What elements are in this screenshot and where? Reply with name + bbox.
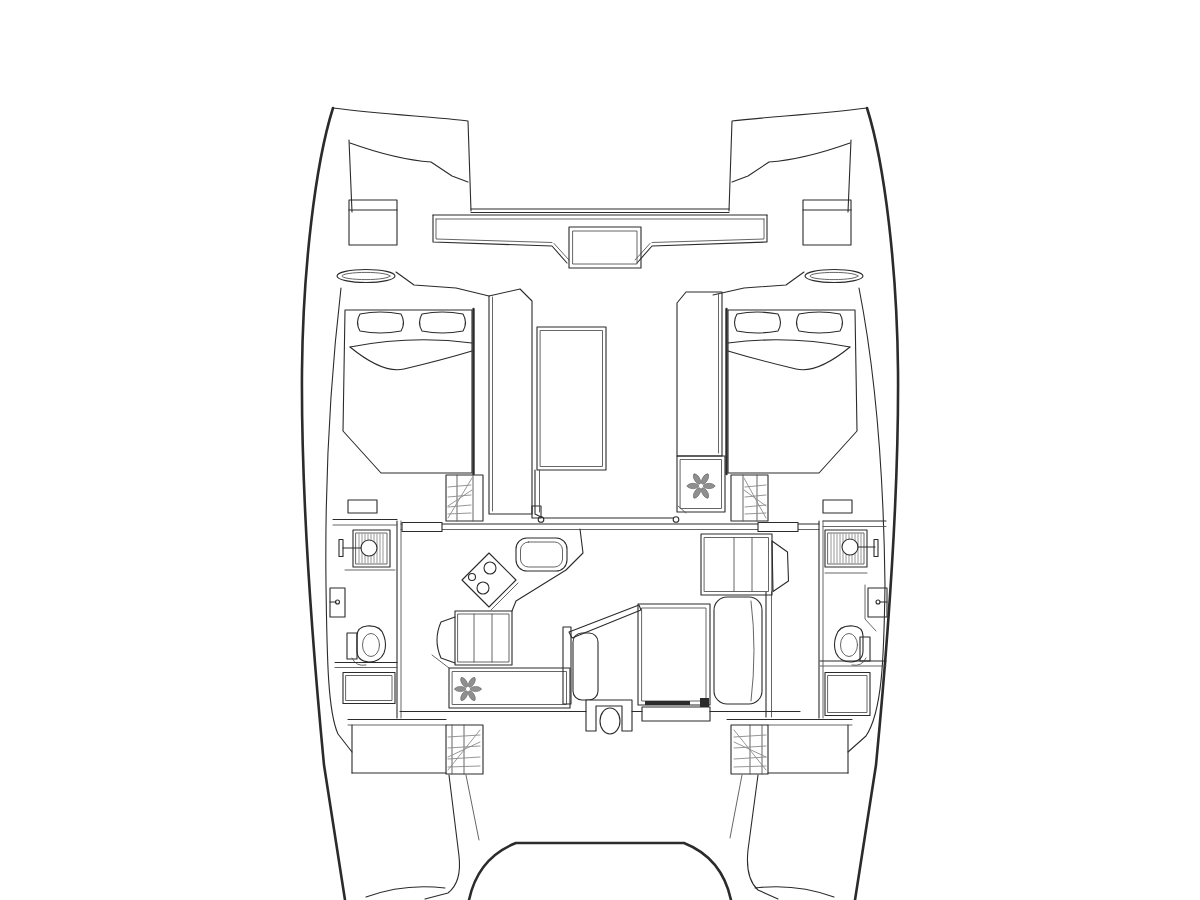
galley-drawers [432,611,512,668]
port-double-berth [343,310,472,473]
starboard-head [819,521,887,718]
starboard-bow-locker [803,200,851,245]
port-step-box [348,500,377,513]
dinette-starboard-bench [714,592,772,717]
port-forward-cabin [343,309,483,521]
starboard-step-box [823,500,852,513]
port-companionway-steps [446,475,483,521]
galley-stove [462,553,518,610]
foredeck-crossbeam [433,209,767,268]
snowflake-icon [455,676,481,701]
starboard-center-panel [677,292,722,456]
blanket-fold [350,347,472,370]
pillow [735,312,781,333]
starboard-companionway-steps [731,475,768,521]
port-head [330,520,397,704]
port-bow-hatch [337,270,395,283]
galley-refrigerator [677,456,725,513]
galley [397,521,583,718]
galley-sink [516,538,567,571]
port-head-cabinet [343,673,395,704]
pillow [358,312,404,333]
shower-head-icon [842,539,858,555]
transom-curve [366,887,445,897]
table-drawer [642,707,710,721]
blanket-edge [350,340,472,347]
port-stern [366,775,479,899]
blanket-edge [728,340,850,347]
bench-cushion [714,597,762,704]
starboard-double-berth [728,310,857,473]
snowflake-icon [687,473,715,500]
helm-seat [586,700,632,734]
dinette-table [638,604,710,721]
table-hinge [645,701,690,705]
galley-seat-bump [437,617,455,663]
stove-burners-icon [484,562,496,574]
port-head-toilet [347,626,386,665]
starboard-hull-outline [848,108,898,900]
saloon-front-wall [401,523,819,532]
starboard-forward-cabin [727,309,858,521]
pillow [420,312,466,333]
starboard-aft-steps [731,725,768,774]
port-bow-locker [349,200,397,245]
catamaran-floor-plan: Catamaran deck plan - interior layout (t… [0,0,1200,900]
starboard-bow-hatch [805,270,863,283]
chart-cabinet [701,534,789,595]
port-hull-outline [302,108,352,900]
aft-cockpit [348,712,852,900]
port-center-panel [489,289,541,518]
port-aft-steps [446,725,483,774]
anchor-locker-box [569,227,641,268]
port-head-sink [330,588,345,617]
port-bow-section [333,108,489,296]
starboard-bow-section [713,108,867,295]
forward-cockpit [489,289,725,522]
starboard-side-step [758,523,798,532]
shower-head-icon [361,540,377,556]
faucet-icon [876,600,880,604]
dinette-port-bench [563,605,641,704]
transom-curve [755,887,834,897]
aft-cockpit-coaming [469,843,731,900]
blanket-fold [728,347,850,370]
starboard-head-cabinet [825,673,870,716]
floor-plan-canvas: Catamaran deck plan - interior layout (t… [0,0,1200,900]
forward-cockpit-skylight [537,327,606,470]
galley-aft-counter [449,668,570,708]
port-side-step [402,523,442,532]
starboard-stern [730,775,834,899]
sliding-door-track [538,517,679,523]
table-latch [700,698,709,707]
starboard-head-shower [825,530,878,567]
bench-cushion [573,633,598,700]
dinette [563,534,789,734]
port-head-shower [339,530,390,567]
pillow [797,312,843,333]
starboard-head-toilet [835,626,871,665]
